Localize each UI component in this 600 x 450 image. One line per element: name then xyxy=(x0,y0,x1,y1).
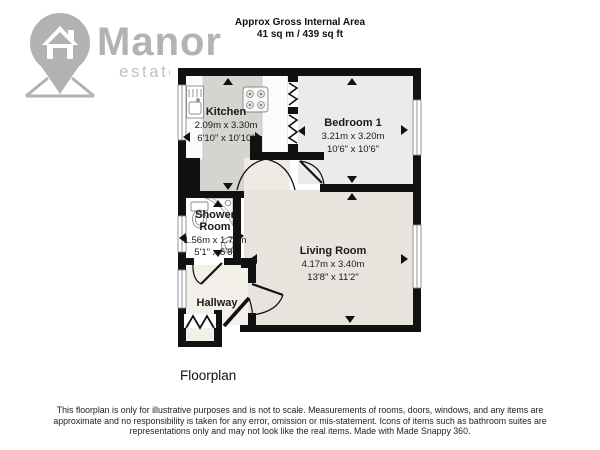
kitchen-metric: 2.09m x 3.30m xyxy=(195,120,258,131)
floorplan-caption: Floorplan xyxy=(180,368,236,383)
living-label: Living Room xyxy=(300,245,367,257)
nook-floor xyxy=(244,158,290,194)
floorplan-drawing: Kitchen 2.09m x 3.30m 6'10" x 10'10" Bed… xyxy=(170,56,432,356)
floorplan: Kitchen 2.09m x 3.30m 6'10" x 10'10" Bed… xyxy=(170,56,432,356)
living-imperial: 13'8" x 11'2" xyxy=(307,272,358,283)
kitchen-imperial: 6'10" x 10'10" xyxy=(197,133,254,144)
hob-icon xyxy=(243,87,268,112)
living-floor xyxy=(244,190,413,325)
kitchen-sink-icon xyxy=(187,86,204,118)
living-metric: 4.17m x 3.40m xyxy=(302,259,365,270)
shower-label-1: Shower xyxy=(195,209,235,221)
bedroom1-imperial: 10'6" x 10'6" xyxy=(327,144,379,155)
bedroom1-label: Bedroom 1 xyxy=(324,117,381,129)
map-pin-house-icon xyxy=(20,6,104,102)
shower-metric: 1.56m x 1.72m xyxy=(184,235,247,246)
hallway-label: Hallway xyxy=(197,297,239,309)
shower-label-2: Room xyxy=(199,221,230,233)
bedroom1-metric: 3.21m x 3.20m xyxy=(322,131,385,142)
shower-imperial: 5'1" x 5'8" xyxy=(194,247,236,258)
hallway-zigzag-icon xyxy=(184,314,216,328)
disclaimer-text: This floorplan is only for illustrative … xyxy=(38,405,562,437)
kitchen-label: Kitchen xyxy=(206,106,247,118)
